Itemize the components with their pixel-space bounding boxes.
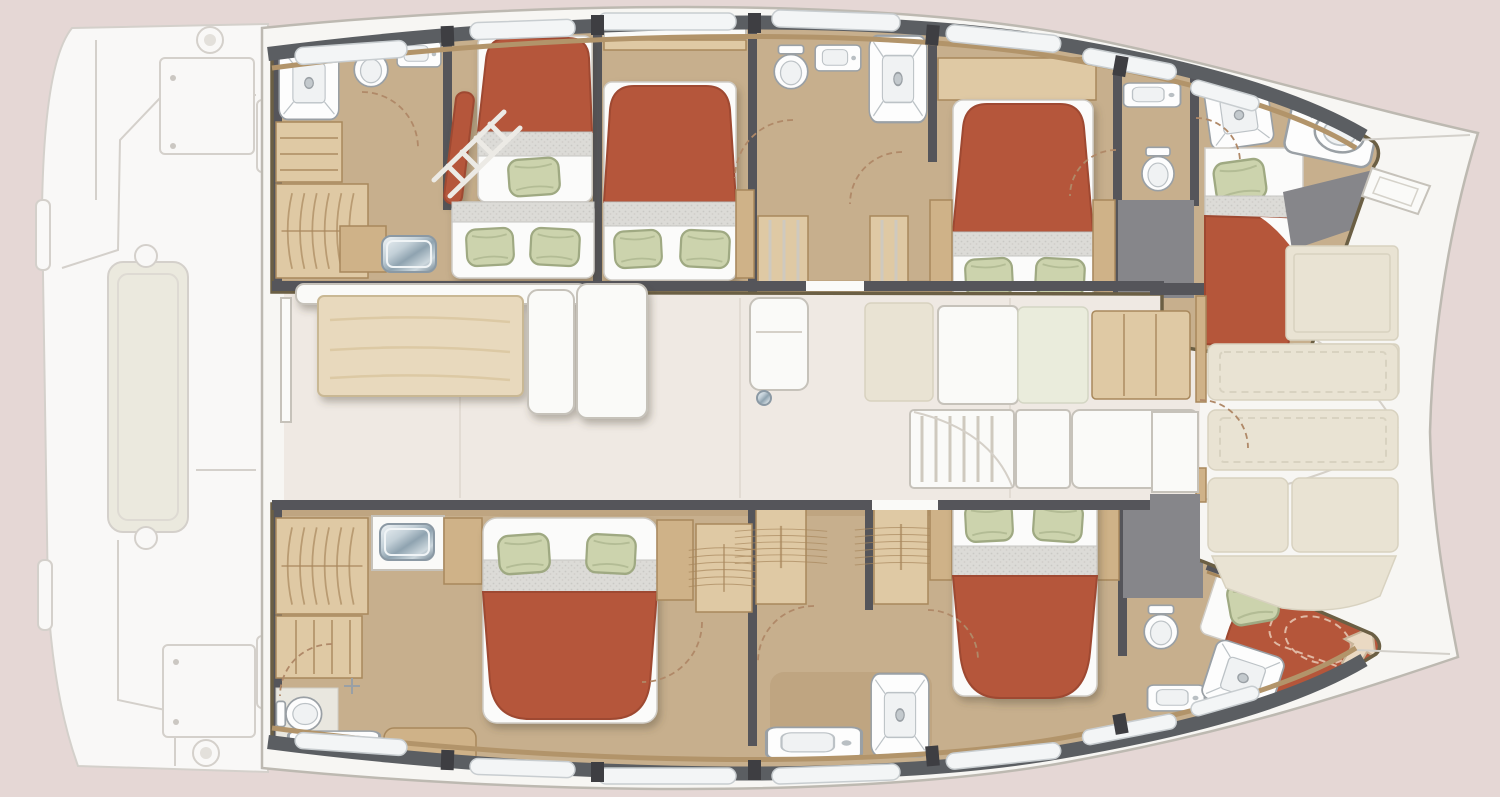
vanity-bench	[340, 226, 386, 272]
counter-white	[1016, 410, 1070, 488]
desk	[444, 518, 482, 584]
door-gap	[806, 281, 864, 291]
washbasin	[1124, 83, 1181, 107]
pillow	[508, 157, 561, 197]
galley-aft-unit	[750, 298, 808, 390]
counter-green	[1018, 307, 1088, 403]
bulkhead	[865, 506, 873, 610]
double-bed	[953, 100, 1093, 300]
bench-knob	[135, 245, 157, 267]
bedside-shelf	[736, 190, 754, 278]
faucet-icon	[757, 391, 771, 405]
overhead-shelf	[604, 40, 746, 50]
shelf-unit	[276, 122, 342, 182]
swim-step	[38, 560, 52, 630]
bench-knob	[135, 527, 157, 549]
hanging-wardrobe	[276, 518, 368, 614]
window-mullion	[591, 15, 604, 35]
floor-plan-svg	[0, 0, 1500, 797]
hanging-wardrobe	[689, 524, 760, 612]
window-mullion	[925, 25, 940, 46]
salon-fwd-partition	[272, 500, 1164, 510]
counter-beige	[865, 303, 933, 401]
toilet	[1142, 147, 1174, 190]
window-mullion	[591, 762, 604, 782]
bed-duvet	[953, 576, 1097, 698]
window-mullion	[748, 13, 761, 33]
toilet	[1144, 605, 1178, 648]
door-gap	[872, 500, 938, 510]
sofa-chaise	[528, 290, 574, 414]
shower	[871, 674, 929, 757]
cockpit-bench	[108, 262, 188, 532]
fwd-corner-wall	[1150, 283, 1204, 295]
bedside-table	[657, 520, 693, 600]
swim-step	[36, 200, 50, 270]
double-bed	[953, 490, 1097, 698]
bedside-table	[930, 200, 952, 290]
pillow	[586, 534, 637, 575]
window-mullion	[925, 745, 940, 766]
shelf-column	[276, 616, 362, 678]
hull-window	[598, 768, 736, 784]
toilet	[774, 45, 808, 88]
bedside-table	[1093, 200, 1115, 290]
aft-door	[281, 298, 291, 422]
hatch-screw	[173, 659, 179, 665]
hull-window	[470, 758, 575, 778]
step-locker	[870, 216, 908, 286]
sofa-module	[577, 284, 647, 418]
step-locker	[758, 216, 808, 286]
window-mullion	[441, 750, 455, 770]
bed-duvet	[953, 104, 1093, 232]
fwd-wall	[1196, 296, 1206, 402]
pillow	[466, 228, 515, 267]
hull-window	[598, 13, 736, 30]
window-mullion	[441, 26, 455, 46]
winch-center	[200, 747, 212, 759]
catamaran-floor-plan	[0, 0, 1500, 797]
washbasin	[815, 45, 861, 71]
pillow	[530, 227, 580, 266]
aft-deck	[36, 24, 269, 772]
winch-center	[204, 34, 216, 46]
dining-table-top	[318, 296, 523, 396]
counter-island	[938, 306, 1018, 404]
washbasin-counter	[767, 727, 862, 758]
toilet	[276, 697, 321, 731]
hull-window	[772, 764, 900, 784]
double-bed	[604, 82, 736, 280]
counter-wood	[1092, 311, 1190, 399]
bench-cushion	[1208, 478, 1288, 552]
hatch-screw	[170, 75, 176, 81]
owner-double-bed	[483, 518, 657, 723]
cockpit-locker-hatch	[160, 58, 254, 154]
hatch-screw	[173, 719, 179, 725]
pillow	[614, 230, 663, 269]
overhead-shelf	[938, 58, 1096, 100]
lower-berth-sheet	[452, 202, 594, 222]
bed-sheet	[604, 202, 736, 226]
hatch-screw	[170, 143, 176, 149]
pillow	[498, 533, 551, 575]
bench-cushion	[1292, 478, 1398, 552]
fridge-unit	[1152, 412, 1198, 492]
bed-sheet	[953, 546, 1097, 576]
bed-sheet	[953, 232, 1093, 256]
access-strip	[1150, 494, 1200, 562]
pillow	[680, 229, 730, 268]
window-mullion	[748, 760, 761, 780]
bed-duvet	[483, 592, 657, 719]
hull-window	[772, 10, 901, 31]
port-forward-cabin	[930, 58, 1194, 300]
companionway-stairs	[910, 410, 1014, 488]
shower	[869, 36, 927, 122]
sun-pad-upper	[1286, 246, 1398, 340]
hull-window	[470, 19, 576, 40]
bed-duvet	[604, 86, 736, 202]
